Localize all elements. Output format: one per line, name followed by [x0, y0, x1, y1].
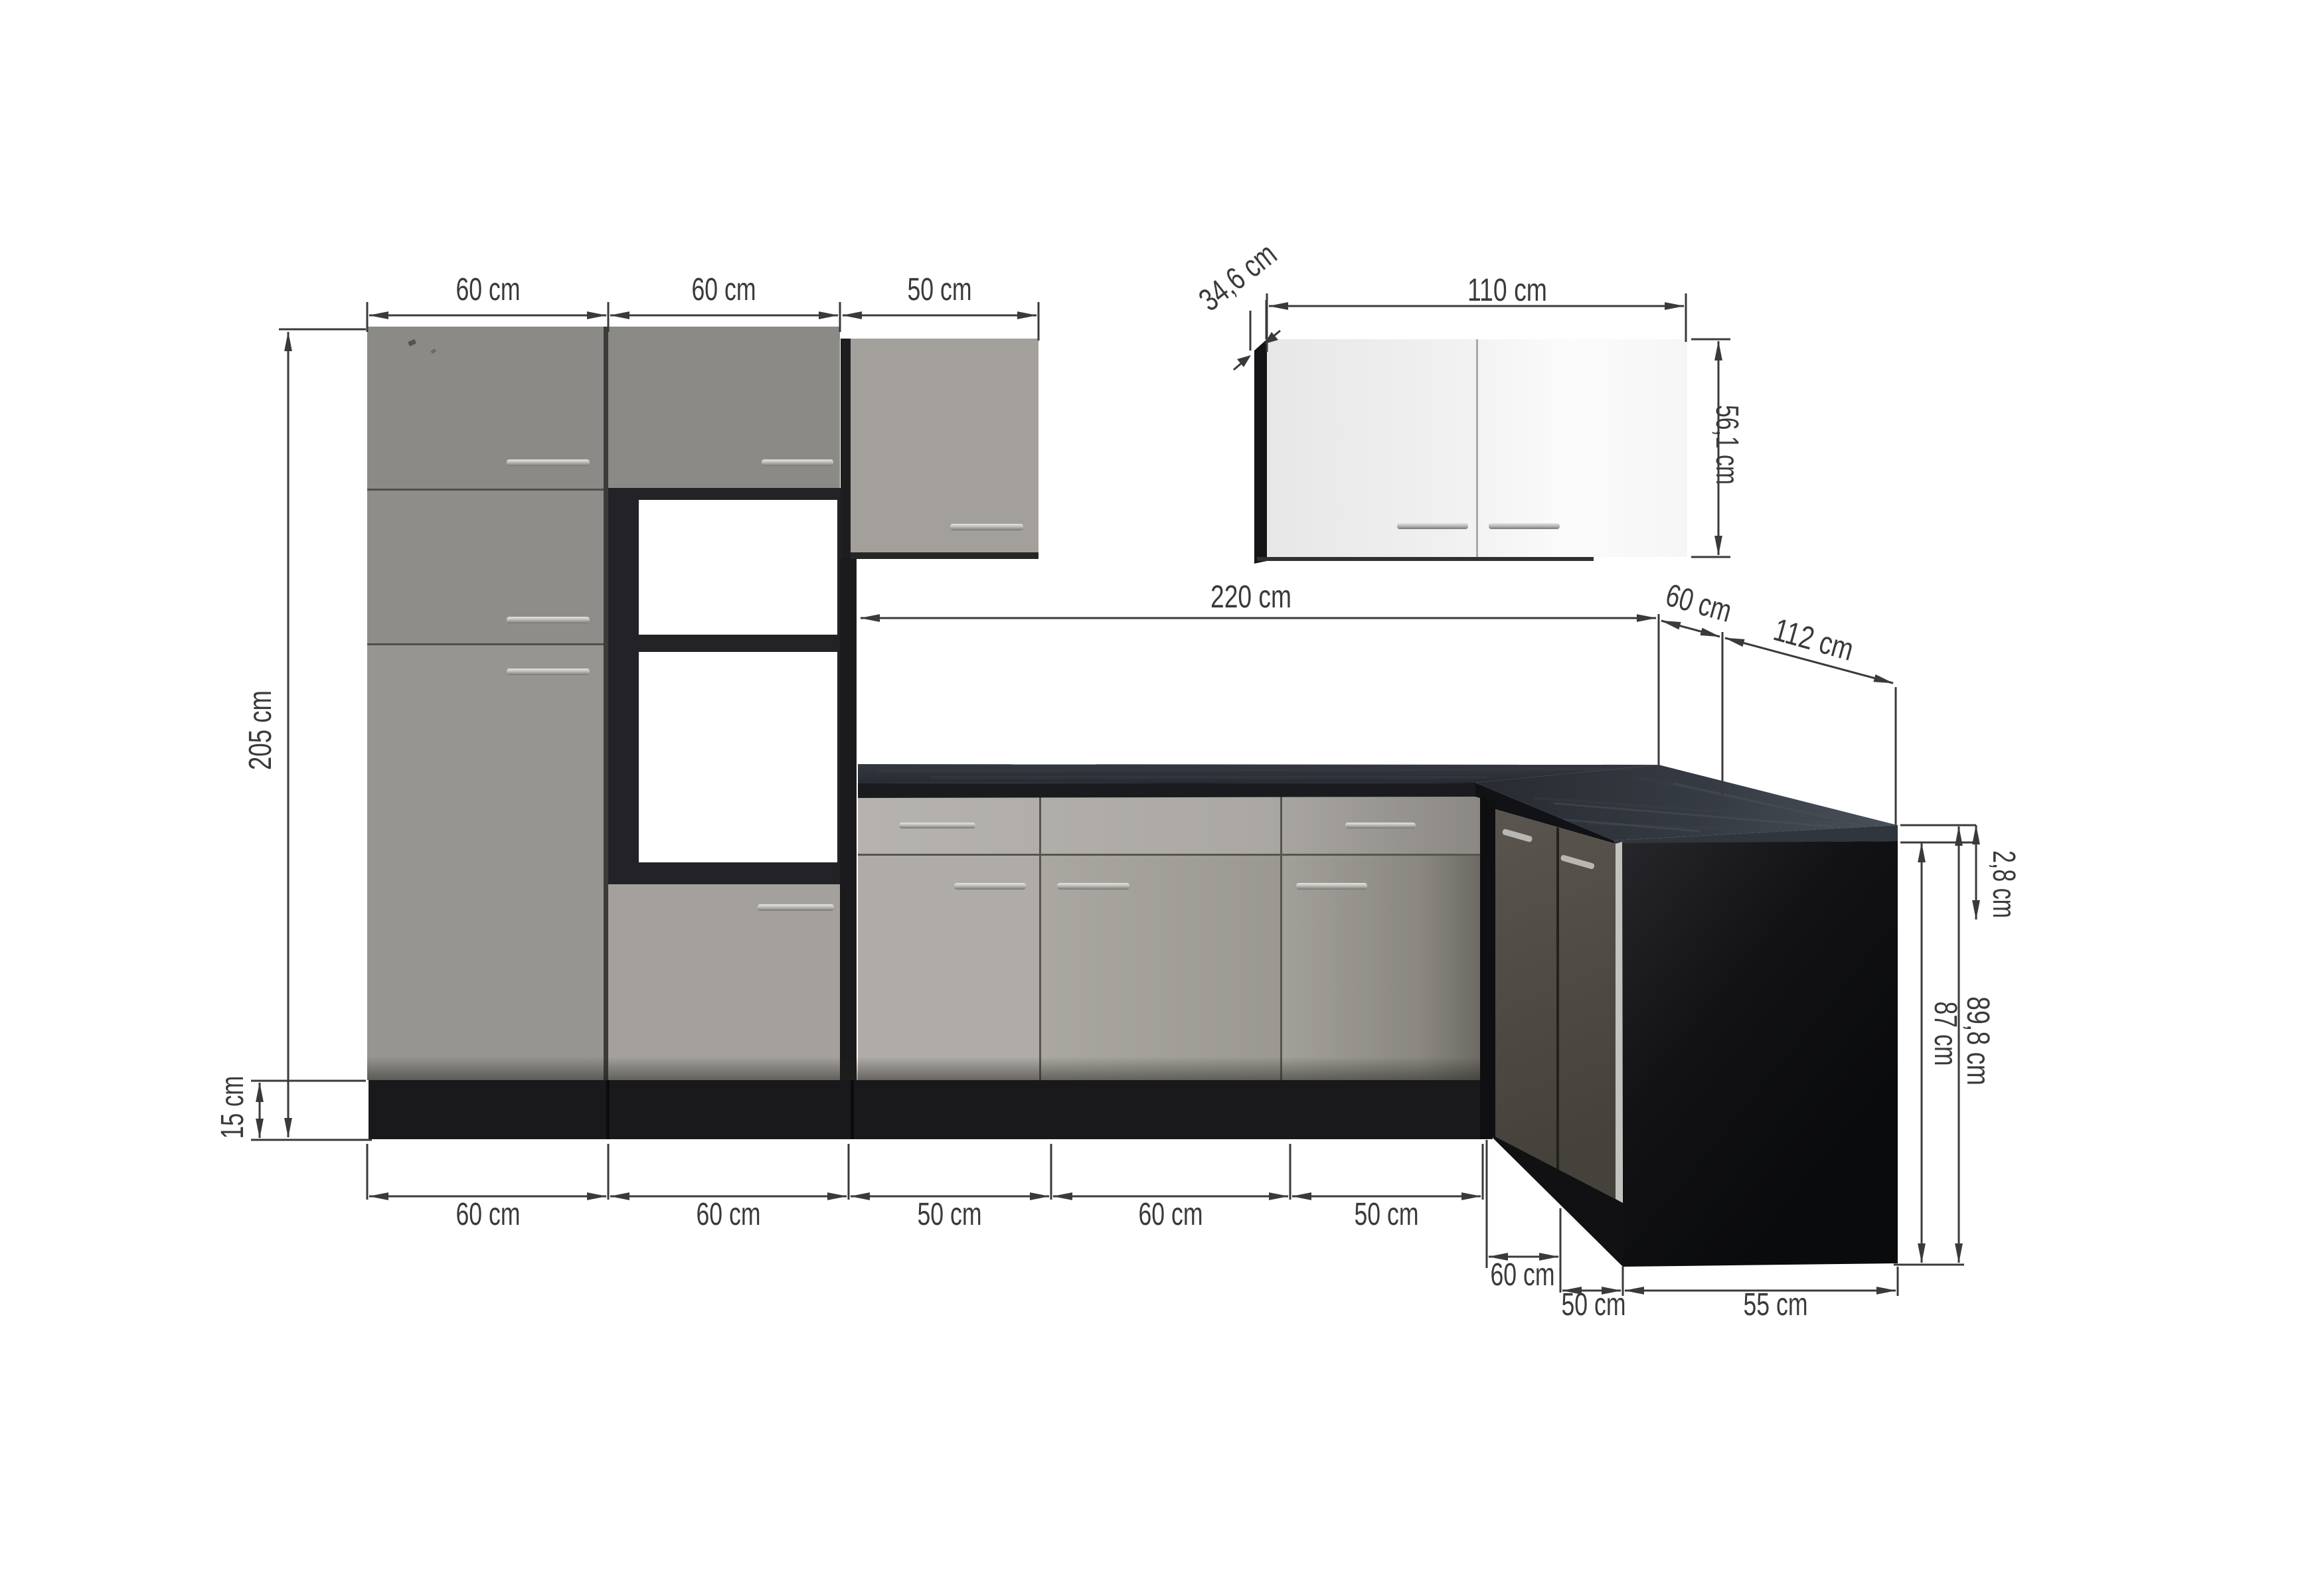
- svg-text:56,1 cm: 56,1 cm: [1709, 405, 1744, 485]
- svg-text:55 cm: 55 cm: [1744, 1287, 1808, 1322]
- svg-text:50 cm: 50 cm: [1355, 1197, 1419, 1232]
- svg-text:2,8 cm: 2,8 cm: [1986, 850, 2021, 918]
- svg-text:50 cm: 50 cm: [1562, 1287, 1626, 1322]
- svg-text:50 cm: 50 cm: [918, 1197, 982, 1232]
- svg-text:110 cm: 110 cm: [1467, 273, 1547, 308]
- svg-text:89,8 cm: 89,8 cm: [1960, 996, 1995, 1085]
- svg-text:60 cm: 60 cm: [1491, 1257, 1555, 1293]
- svg-text:50 cm: 50 cm: [908, 272, 972, 307]
- svg-text:60 cm: 60 cm: [1139, 1197, 1203, 1232]
- svg-text:60 cm: 60 cm: [456, 272, 521, 307]
- svg-text:60 cm: 60 cm: [697, 1197, 761, 1232]
- svg-text:15 cm: 15 cm: [215, 1076, 250, 1139]
- svg-text:60 cm: 60 cm: [456, 1197, 521, 1232]
- svg-text:60 cm: 60 cm: [692, 272, 756, 307]
- svg-text:220 cm: 220 cm: [1210, 580, 1291, 615]
- svg-text:87 cm: 87 cm: [1928, 1002, 1963, 1066]
- svg-text:205 cm: 205 cm: [243, 690, 278, 770]
